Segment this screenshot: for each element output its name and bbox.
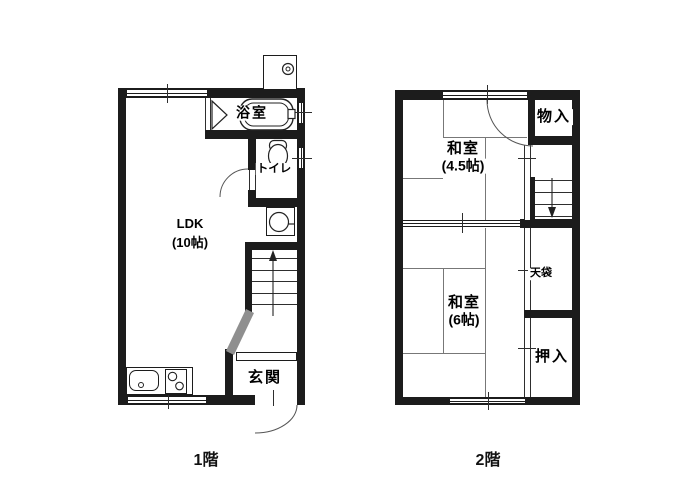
fixtures-overlay — [0, 0, 700, 495]
door-swing-arc — [220, 169, 248, 197]
room-label-toilet: トイレ — [256, 163, 293, 175]
room-size-washitsu45: (4.5帖) — [440, 159, 487, 174]
room-size-ldk: (10帖) — [170, 236, 210, 250]
room-label-washitsu45: 和室 — [445, 141, 481, 157]
folding-door-icon — [212, 101, 227, 129]
sink-drain — [139, 383, 144, 388]
room-label-bathroom: 浴室 — [234, 106, 270, 121]
washbasin-icon — [270, 213, 289, 232]
washer-drum-center — [286, 67, 290, 71]
entrance-door-arc — [255, 405, 297, 433]
room-label-storage: 物入 — [535, 109, 573, 125]
room-label-washitsu6: 和室 — [446, 295, 482, 311]
room-size-washitsu6: (6帖) — [446, 313, 481, 328]
room-label-tenbukuro: 天袋 — [528, 268, 554, 280]
floor-plan-canvas: 浴室 トイレ LDK (10帖) 玄関 物入 和室 (4.5帖) 天袋 和室 (… — [0, 0, 700, 495]
room-label-oshiire: 押入 — [533, 349, 571, 365]
floor2-caption: 2階 — [476, 446, 501, 470]
stair-diagonal-wall — [226, 309, 254, 355]
floor1-caption: 1階 — [194, 446, 219, 470]
stair-down-arrow — [548, 207, 556, 218]
stove-burner — [168, 372, 176, 380]
stove-burner — [176, 382, 184, 390]
stair-up-arrow — [269, 250, 277, 261]
washer-drum-icon — [283, 64, 294, 75]
bath-tap-icon — [288, 110, 295, 119]
room-label-entrance: 玄関 — [246, 370, 284, 386]
room-label-ldk: LDK — [175, 217, 206, 231]
door-swing-arc — [487, 100, 533, 146]
